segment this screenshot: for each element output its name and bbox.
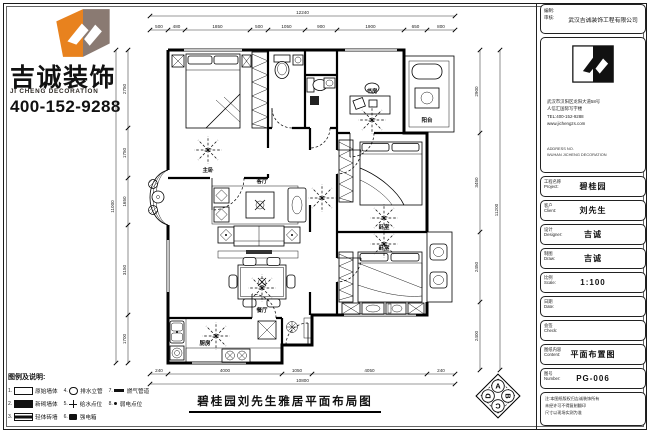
bathroom-1 (274, 55, 303, 79)
floor-plan: 主卧 书房 客厅 餐厅 厨房 卧室 卧室 阳台 1224050048018505… (108, 0, 540, 392)
legend-label: 原始墙体 (35, 387, 57, 395)
titleblock-field-7: 图纸内容 Content:平面布置图 (540, 344, 646, 365)
svg-text:4050: 4050 (364, 368, 375, 373)
titleblock-notes: 注:本图纸版权归吉诚装饰所有 未经许可不得复制翻印 尺寸以现场实测为准 (540, 392, 646, 426)
living-room (212, 186, 306, 258)
note-line: 未经许可不得复制翻印 (545, 403, 641, 410)
svg-text:800: 800 (437, 24, 445, 29)
master-bed (172, 54, 251, 128)
svg-text:卧室: 卧室 (378, 244, 390, 252)
square-symbol (69, 414, 77, 420)
titleblock-field-8: 图号 Number:PG-006 (540, 368, 646, 389)
svg-text:240: 240 (155, 368, 163, 373)
svg-text:1050: 1050 (281, 24, 292, 29)
compass-letter-b: B (503, 393, 512, 398)
legend-label: 轻体砖墙 (35, 413, 57, 421)
svg-text:2450: 2450 (474, 261, 479, 272)
company-name: 武汉吉诚装饰工程有限公司 (563, 5, 643, 33)
svg-text:11000: 11000 (110, 200, 115, 213)
titleblock-field-1: 客户 Client:刘先生 (540, 200, 646, 221)
master-wardrobe (252, 52, 268, 128)
compass-letter-a: A (495, 382, 501, 391)
address-line: TEL:400-152-9288 (547, 113, 600, 120)
svg-text:500: 500 (155, 24, 163, 29)
bedroom-3 (339, 252, 424, 314)
svg-text:客厅: 客厅 (255, 177, 268, 185)
legend-label: 弱电点位 (120, 400, 142, 408)
svg-text:书房: 书房 (366, 87, 378, 95)
legend-item: 8.弱电点位 (109, 400, 150, 408)
compass-letter-d: D (484, 393, 493, 398)
legend-label: 给水点位 (80, 400, 102, 408)
svg-text:厨房: 厨房 (199, 339, 211, 347)
legend-item: 5.给水点位 (64, 400, 103, 408)
svg-text:2400: 2400 (474, 330, 479, 341)
circle-symbol (69, 387, 78, 396)
kitchen (168, 318, 282, 363)
header-label-bottom: 审核: (544, 15, 554, 22)
company-logo-bw-icon (572, 45, 614, 83)
titleblock-field-6: 会签 Check: (540, 320, 646, 341)
svg-text:卧室: 卧室 (378, 223, 390, 231)
compass: A B C D (474, 372, 522, 420)
legend-column: 4.排水立管5.给水点位6.强电箱 (64, 384, 103, 424)
svg-text:主卧: 主卧 (202, 166, 214, 174)
header-label-top: 编制: (544, 8, 554, 15)
svg-text:1650: 1650 (122, 196, 127, 207)
rect-outline-symbol (14, 387, 33, 395)
titleblock-logo-box: 武汉市汉阳区龙阳大道58号 人信汇国际写字楼 TEL:400-152-9288 … (540, 37, 646, 173)
legend-label: 强电箱 (80, 413, 97, 421)
legend-item: 4.排水立管 (64, 387, 103, 396)
note-line: 尺寸以现场实测为准 (545, 410, 641, 417)
company-logo-icon (54, 8, 112, 58)
titleblock-field-4: 比例 Scale:1:100 (540, 272, 646, 293)
svg-text:3150: 3150 (122, 264, 127, 275)
svg-text:650: 650 (412, 24, 420, 29)
rect-half-symbol (14, 413, 33, 421)
legend-column: 1.原始墙体2.新砌墙体3.轻体砖墙 (8, 384, 58, 424)
address-line: 武汉市汉阳区龙阳大道58号 (547, 98, 600, 105)
legend-item: 1.原始墙体 (8, 387, 58, 395)
balcony-right (427, 232, 452, 302)
plus-symbol (69, 400, 77, 408)
svg-text:11200: 11200 (494, 203, 499, 216)
address-line: www.jichengzs.com (547, 120, 600, 127)
legend-label: 排水立管 (80, 387, 102, 395)
svg-text:1850: 1850 (212, 24, 223, 29)
study-desk (350, 83, 390, 114)
legend-item: 2.新砌墙体 (8, 400, 58, 408)
svg-text:500: 500 (255, 24, 263, 29)
titleblock-header: 编制: 审核: 武汉吉诚装饰工程有限公司 (540, 4, 646, 34)
svg-text:10800: 10800 (296, 378, 309, 383)
svg-text:900: 900 (317, 24, 325, 29)
svg-text:1050: 1050 (292, 368, 303, 373)
titleblock-field-3: 制图 Draw:吉诚 (540, 248, 646, 269)
svg-text:4000: 4000 (220, 368, 231, 373)
titleblock-field-5: 日期 Date: (540, 296, 646, 317)
legend-label: 新砌墙体 (35, 400, 57, 408)
brand-phone: 400-152-9288 (10, 97, 121, 117)
svg-text:240: 240 (437, 368, 445, 373)
rect-filled-symbol (14, 400, 33, 408)
svg-text:480: 480 (173, 24, 181, 29)
svg-text:3450: 3450 (474, 177, 479, 188)
titleblock: 编制: 审核: 武汉吉诚装饰工程有限公司 武汉市汉阳区龙阳大道58号 人信汇国际… (540, 4, 646, 429)
titleblock-field-2: 设计 Designer:吉诚 (540, 224, 646, 245)
svg-text:1700: 1700 (122, 333, 127, 344)
svg-text:1750: 1750 (122, 147, 127, 158)
titleblock-field-0: 工程名称 Project:碧桂园 (540, 176, 646, 197)
svg-text:2750: 2750 (122, 83, 127, 94)
svg-text:餐厅: 餐厅 (255, 306, 268, 314)
svg-text:阳台: 阳台 (421, 116, 433, 124)
legend-item: 6.强电箱 (64, 413, 103, 421)
footer-line: WUHAN JICHENG DECORATION (547, 152, 607, 158)
titleblock-fields: 工程名称 Project:碧桂园客户 Client:刘先生设计 Designer… (540, 176, 646, 389)
brand-name-en: JI CHENG DECORATION (10, 88, 99, 95)
plan-title: 碧桂园刘先生雅居平面布局图 (150, 392, 420, 413)
dot-symbol (114, 402, 117, 405)
note-line: 注:本图纸版权归吉诚装饰所有 (545, 396, 641, 403)
svg-text:1900: 1900 (365, 24, 376, 29)
bathroom-2 (307, 78, 335, 105)
compass-letter-c: C (495, 401, 501, 410)
svg-text:12240: 12240 (296, 10, 309, 15)
entry (287, 318, 312, 338)
address-line: 人信汇国际写字楼 (547, 105, 600, 112)
svg-text:2900: 2900 (474, 86, 479, 97)
bay-window (149, 170, 169, 225)
legend-item: 3.轻体砖墙 (8, 413, 58, 421)
